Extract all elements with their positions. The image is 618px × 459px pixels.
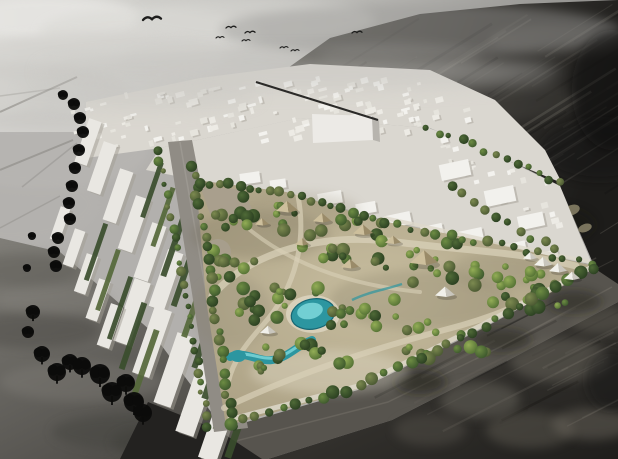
park-tree — [318, 347, 326, 355]
row-tree — [236, 181, 247, 192]
row-tree — [220, 369, 231, 380]
row-tree — [180, 281, 188, 289]
park-tree — [250, 257, 258, 265]
row-tree — [549, 254, 557, 262]
park-tree — [249, 314, 261, 326]
park-tree — [443, 261, 455, 273]
row-tree — [491, 213, 501, 223]
row-tree — [206, 272, 218, 284]
row-tree — [576, 256, 582, 262]
row-tree — [227, 407, 238, 418]
black-tree-canopy — [99, 367, 110, 378]
row-tree — [336, 203, 346, 213]
row-tree — [186, 304, 192, 310]
row-tree — [209, 285, 221, 297]
row-tree — [499, 240, 506, 247]
row-tree — [194, 369, 204, 379]
park-tree — [383, 265, 389, 271]
row-tree — [516, 303, 523, 310]
row-tree — [467, 328, 477, 338]
black-tree-canopy — [26, 265, 30, 269]
park-tree — [525, 266, 536, 277]
row-tree — [326, 385, 340, 399]
row-tree — [340, 386, 352, 398]
park-tree — [453, 345, 461, 353]
row-tree — [187, 314, 192, 319]
row-tree — [493, 151, 500, 158]
park-tree — [235, 308, 244, 317]
row-tree — [195, 178, 206, 189]
row-tree — [544, 176, 553, 185]
row-tree — [176, 266, 186, 276]
park-tree — [413, 322, 425, 334]
row-tree — [432, 345, 443, 356]
black-tree-canopy — [125, 377, 135, 387]
park-tree — [392, 313, 399, 320]
row-tree — [161, 168, 166, 173]
black-tree-canopy — [53, 248, 60, 255]
row-tree — [457, 334, 464, 341]
row-tree — [356, 380, 366, 390]
row-tree — [482, 236, 493, 247]
park-tree — [433, 269, 441, 277]
row-tree — [447, 230, 458, 241]
park-tree — [244, 296, 256, 308]
park-tree — [359, 303, 371, 315]
row-tree — [588, 264, 598, 274]
row-tree — [514, 160, 523, 169]
row-tree — [305, 397, 312, 404]
park-tree — [336, 309, 346, 319]
row-tree — [559, 255, 566, 262]
black-tree-canopy — [57, 234, 64, 241]
park-tree — [333, 357, 345, 369]
row-tree — [503, 308, 514, 319]
park-tree — [475, 345, 488, 358]
park-tree — [328, 244, 337, 253]
park-tree — [224, 271, 236, 283]
black-tree-canopy — [81, 360, 91, 370]
row-tree — [536, 287, 550, 301]
row-tree — [202, 411, 211, 420]
row-tree — [226, 398, 237, 409]
park-tree — [502, 263, 509, 270]
row-tree — [209, 314, 219, 324]
black-tree-canopy — [27, 328, 34, 335]
row-tree — [526, 235, 534, 243]
row-tree — [416, 353, 427, 364]
row-tree — [189, 324, 194, 329]
row-tree — [204, 254, 215, 265]
park-tree — [446, 271, 460, 285]
row-tree — [423, 125, 429, 131]
park-tree — [340, 320, 348, 328]
row-tree — [197, 213, 204, 220]
row-tree — [430, 229, 440, 239]
row-tree — [191, 347, 199, 355]
park-tree — [469, 266, 481, 278]
row-tree — [223, 178, 234, 189]
row-tree — [470, 239, 477, 246]
park-tree — [237, 191, 249, 203]
row-tree — [448, 181, 458, 191]
row-tree — [526, 164, 532, 170]
row-tree — [265, 408, 273, 416]
park-tree — [375, 235, 387, 247]
row-tree — [209, 307, 217, 315]
park-tree — [261, 365, 267, 371]
row-tree — [457, 188, 466, 197]
park-tree — [371, 321, 383, 333]
black-tree-canopy — [79, 114, 86, 121]
row-tree — [408, 227, 414, 233]
park-tree — [406, 344, 413, 351]
black-tree-canopy — [73, 100, 80, 107]
row-tree — [238, 414, 247, 423]
row-tree — [214, 335, 225, 346]
row-tree — [359, 211, 369, 221]
box-front-face — [312, 114, 373, 143]
row-tree — [221, 391, 229, 399]
park-tree — [315, 224, 328, 237]
park-tree — [503, 276, 516, 289]
row-tree — [318, 198, 326, 206]
row-tree — [441, 339, 450, 348]
row-tree — [436, 131, 444, 139]
park-tree — [388, 293, 401, 306]
row-tree — [200, 223, 208, 231]
black-tree-canopy — [55, 262, 62, 269]
row-tree — [206, 181, 214, 189]
row-tree — [287, 191, 294, 198]
black-tree-canopy — [69, 215, 76, 222]
park-tree — [406, 250, 414, 258]
park-tree — [311, 281, 324, 294]
row-tree — [154, 146, 163, 155]
row-tree — [550, 281, 562, 293]
park-tree — [304, 229, 316, 241]
row-tree — [193, 198, 204, 209]
park-tree — [369, 310, 381, 322]
row-tree — [420, 228, 429, 237]
black-tree-canopy — [142, 407, 152, 417]
row-tree — [170, 224, 180, 234]
row-tree — [369, 215, 376, 222]
park-tree — [276, 288, 283, 295]
row-tree — [534, 247, 542, 255]
row-tree — [225, 418, 238, 431]
park-tree — [432, 329, 440, 337]
mottle-patch — [394, 414, 466, 446]
row-tree — [220, 356, 227, 363]
park-tree — [211, 210, 220, 219]
park-tree — [554, 302, 561, 309]
city-haze-left — [20, 79, 260, 111]
row-tree — [250, 412, 259, 421]
black-tree-canopy — [31, 233, 35, 237]
black-tree-canopy — [62, 92, 68, 98]
row-tree — [177, 260, 182, 265]
park-tree — [371, 257, 380, 266]
small-pond — [230, 350, 246, 362]
mottle-patch — [546, 290, 602, 314]
row-tree — [280, 404, 287, 411]
black-tree-canopy — [71, 182, 78, 189]
row-tree — [190, 338, 197, 345]
row-tree — [166, 213, 174, 221]
row-tree — [550, 244, 559, 253]
mottle-patch — [440, 382, 520, 418]
row-tree — [504, 155, 511, 162]
row-tree — [202, 233, 211, 242]
park-tree — [238, 262, 250, 274]
row-tree — [172, 233, 180, 241]
row-tree — [393, 220, 401, 228]
park-tree — [277, 223, 290, 236]
row-tree — [154, 157, 164, 167]
row-tree — [192, 172, 200, 180]
park-tree — [468, 278, 482, 292]
row-tree — [197, 379, 204, 386]
park-tree — [229, 214, 238, 223]
park-tree — [413, 247, 420, 254]
row-tree — [307, 197, 316, 206]
park-tree — [262, 343, 269, 350]
row-tree — [274, 186, 284, 196]
row-tree — [202, 422, 212, 432]
row-tree — [327, 203, 333, 209]
row-tree — [219, 378, 231, 390]
row-tree — [203, 242, 213, 252]
row-tree — [459, 236, 466, 243]
park-tree — [284, 288, 296, 300]
park-tree — [326, 320, 336, 330]
black-tree-canopy — [82, 128, 89, 135]
row-tree — [365, 372, 378, 385]
row-tree — [470, 198, 479, 207]
row-tree — [266, 186, 275, 195]
row-tree — [491, 315, 498, 322]
park-tree — [562, 299, 569, 306]
park-tree — [487, 296, 499, 308]
park-tree — [335, 214, 347, 226]
row-tree — [164, 204, 170, 210]
row-tree — [556, 178, 564, 186]
row-tree — [393, 361, 403, 371]
row-tree — [298, 192, 306, 200]
park-tree — [221, 223, 230, 232]
park-tree — [407, 276, 419, 288]
row-tree — [348, 208, 359, 219]
row-tree — [256, 187, 262, 193]
row-tree — [510, 243, 517, 250]
park-tree — [274, 349, 286, 361]
park-tree — [318, 253, 328, 263]
row-tree — [480, 148, 488, 156]
park-tree — [402, 325, 412, 335]
park-tree — [270, 311, 283, 324]
park-tree — [339, 252, 347, 260]
row-tree — [161, 182, 166, 187]
row-tree — [480, 205, 489, 214]
row-tree — [198, 390, 203, 395]
park-tree — [282, 303, 288, 309]
black-tree-canopy — [74, 164, 81, 171]
row-tree — [380, 369, 388, 377]
row-tree — [183, 293, 189, 299]
row-tree — [541, 236, 551, 246]
park-tree — [424, 318, 432, 326]
row-tree — [290, 398, 301, 409]
row-tree — [216, 328, 223, 335]
row-tree — [379, 218, 389, 228]
row-tree — [482, 322, 492, 332]
park-tree — [492, 272, 504, 284]
park-tree — [236, 282, 250, 296]
black-tree-canopy — [68, 199, 75, 206]
black-tree-canopy — [32, 307, 40, 315]
row-tree — [537, 170, 543, 176]
black-tree-canopy — [78, 146, 85, 153]
aerial-rendering-figure — [0, 0, 618, 459]
park-tree — [218, 256, 229, 267]
row-tree — [468, 139, 476, 147]
row-tree — [203, 400, 210, 407]
black-tree-canopy — [41, 348, 50, 357]
park-tree — [230, 257, 240, 267]
row-tree — [195, 357, 203, 365]
park-tree — [300, 340, 311, 351]
row-tree — [164, 190, 173, 199]
row-tree — [504, 218, 511, 225]
row-tree — [207, 296, 219, 308]
row-tree — [459, 134, 469, 144]
row-tree — [246, 185, 254, 193]
row-tree — [186, 161, 197, 172]
park-tree — [345, 306, 354, 315]
row-tree — [446, 133, 451, 138]
park-tree — [242, 219, 253, 230]
row-tree — [174, 244, 181, 251]
masterplan-aerial-rendering — [0, 0, 618, 459]
row-tree — [517, 227, 526, 236]
